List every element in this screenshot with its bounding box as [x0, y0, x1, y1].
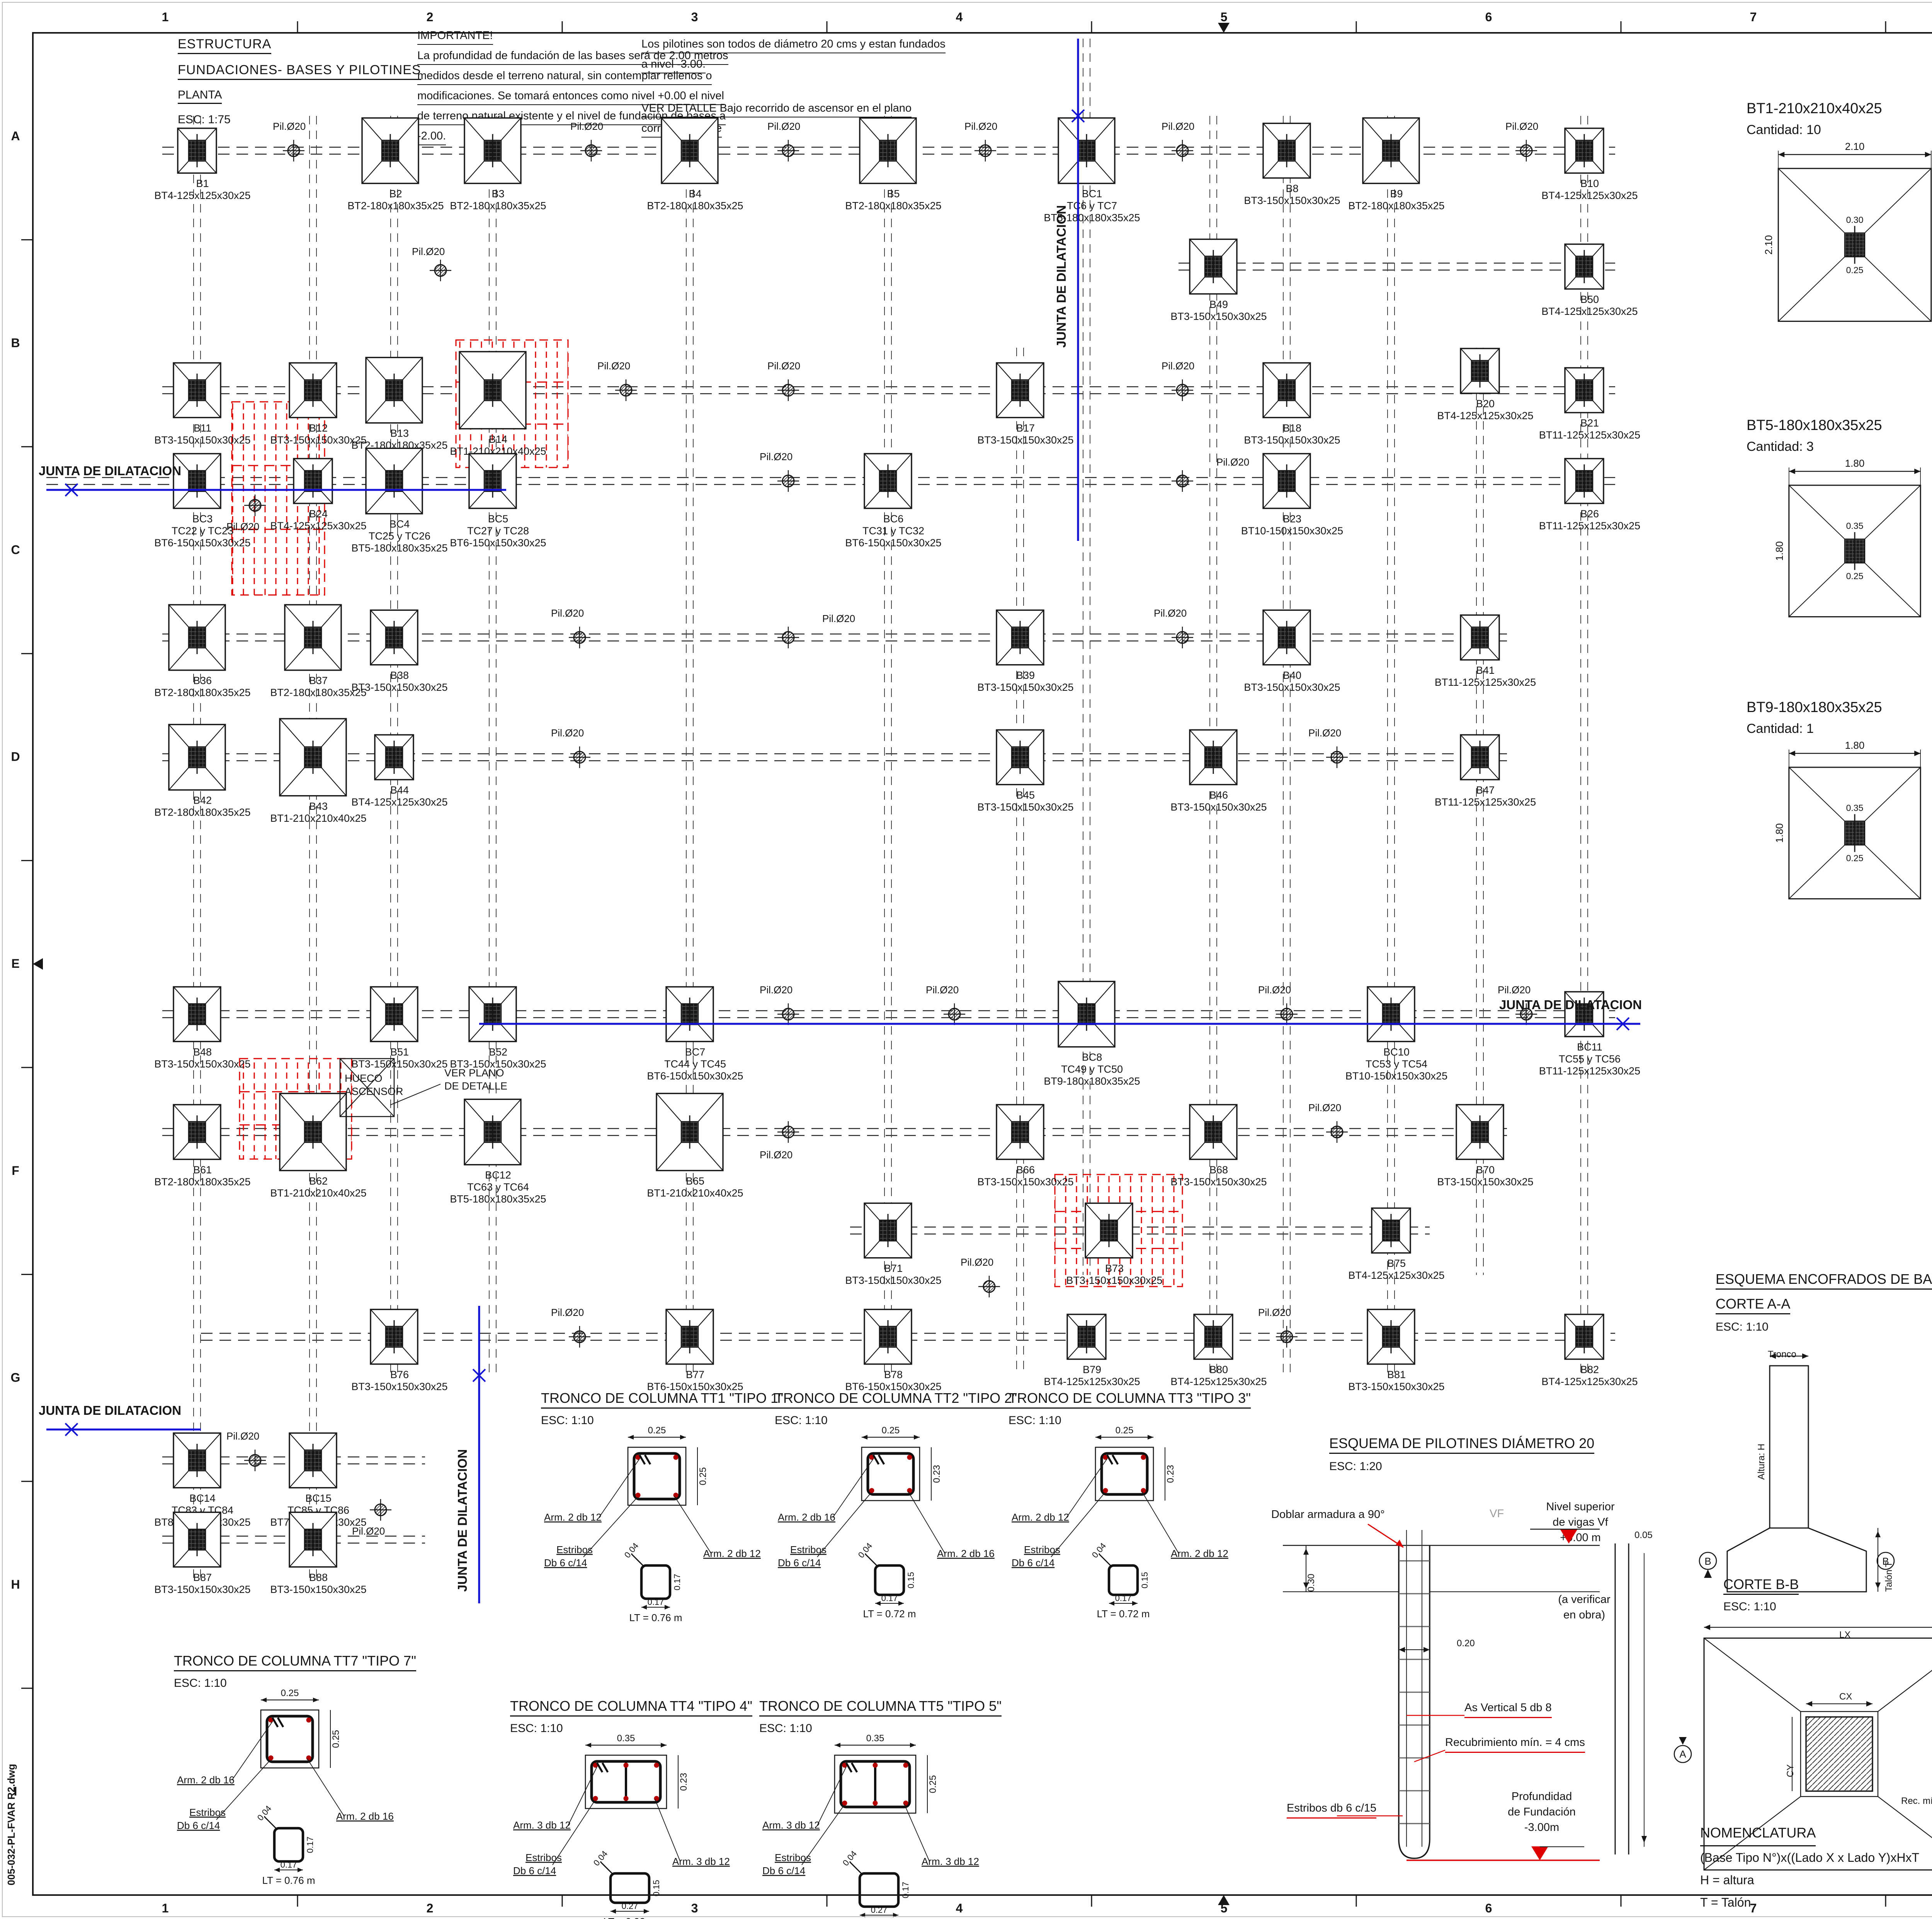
detalle-drawing: BB — [0, 0, 1932, 1919]
drawing-sheet: ESTRUCTURA FUNDACIONES- BASES Y PILOTINE… — [0, 0, 1932, 1919]
